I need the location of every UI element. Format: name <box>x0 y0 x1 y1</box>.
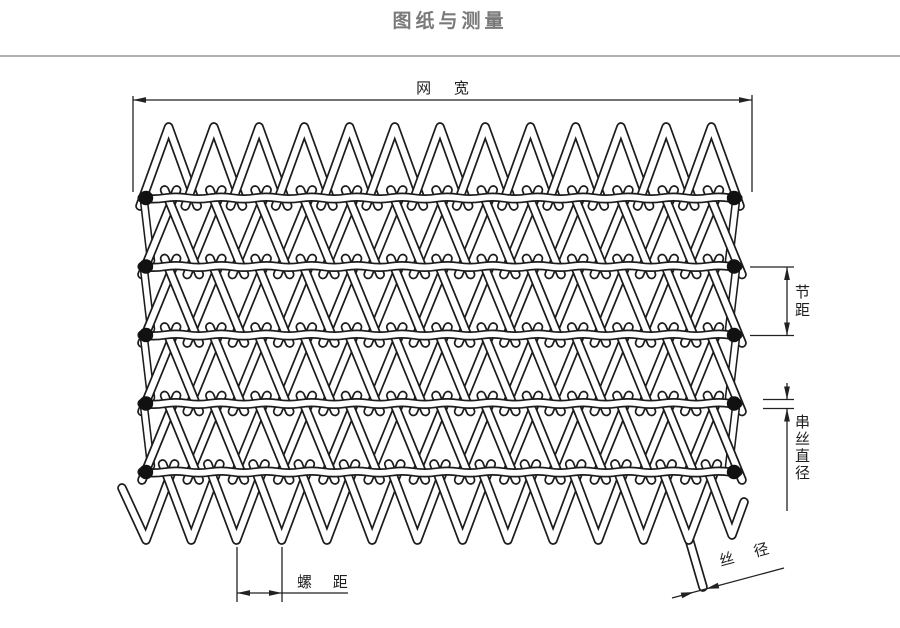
pitch-label: 节距 <box>792 284 813 320</box>
page: { "title": "图纸与测量", "labels": { "net_wid… <box>0 0 900 628</box>
cross-wire-diameter-label: 串丝直径 <box>792 414 813 482</box>
spiral-pitch-label: 螺 距 <box>297 571 356 592</box>
net-width-label: 网 宽 <box>387 77 507 98</box>
